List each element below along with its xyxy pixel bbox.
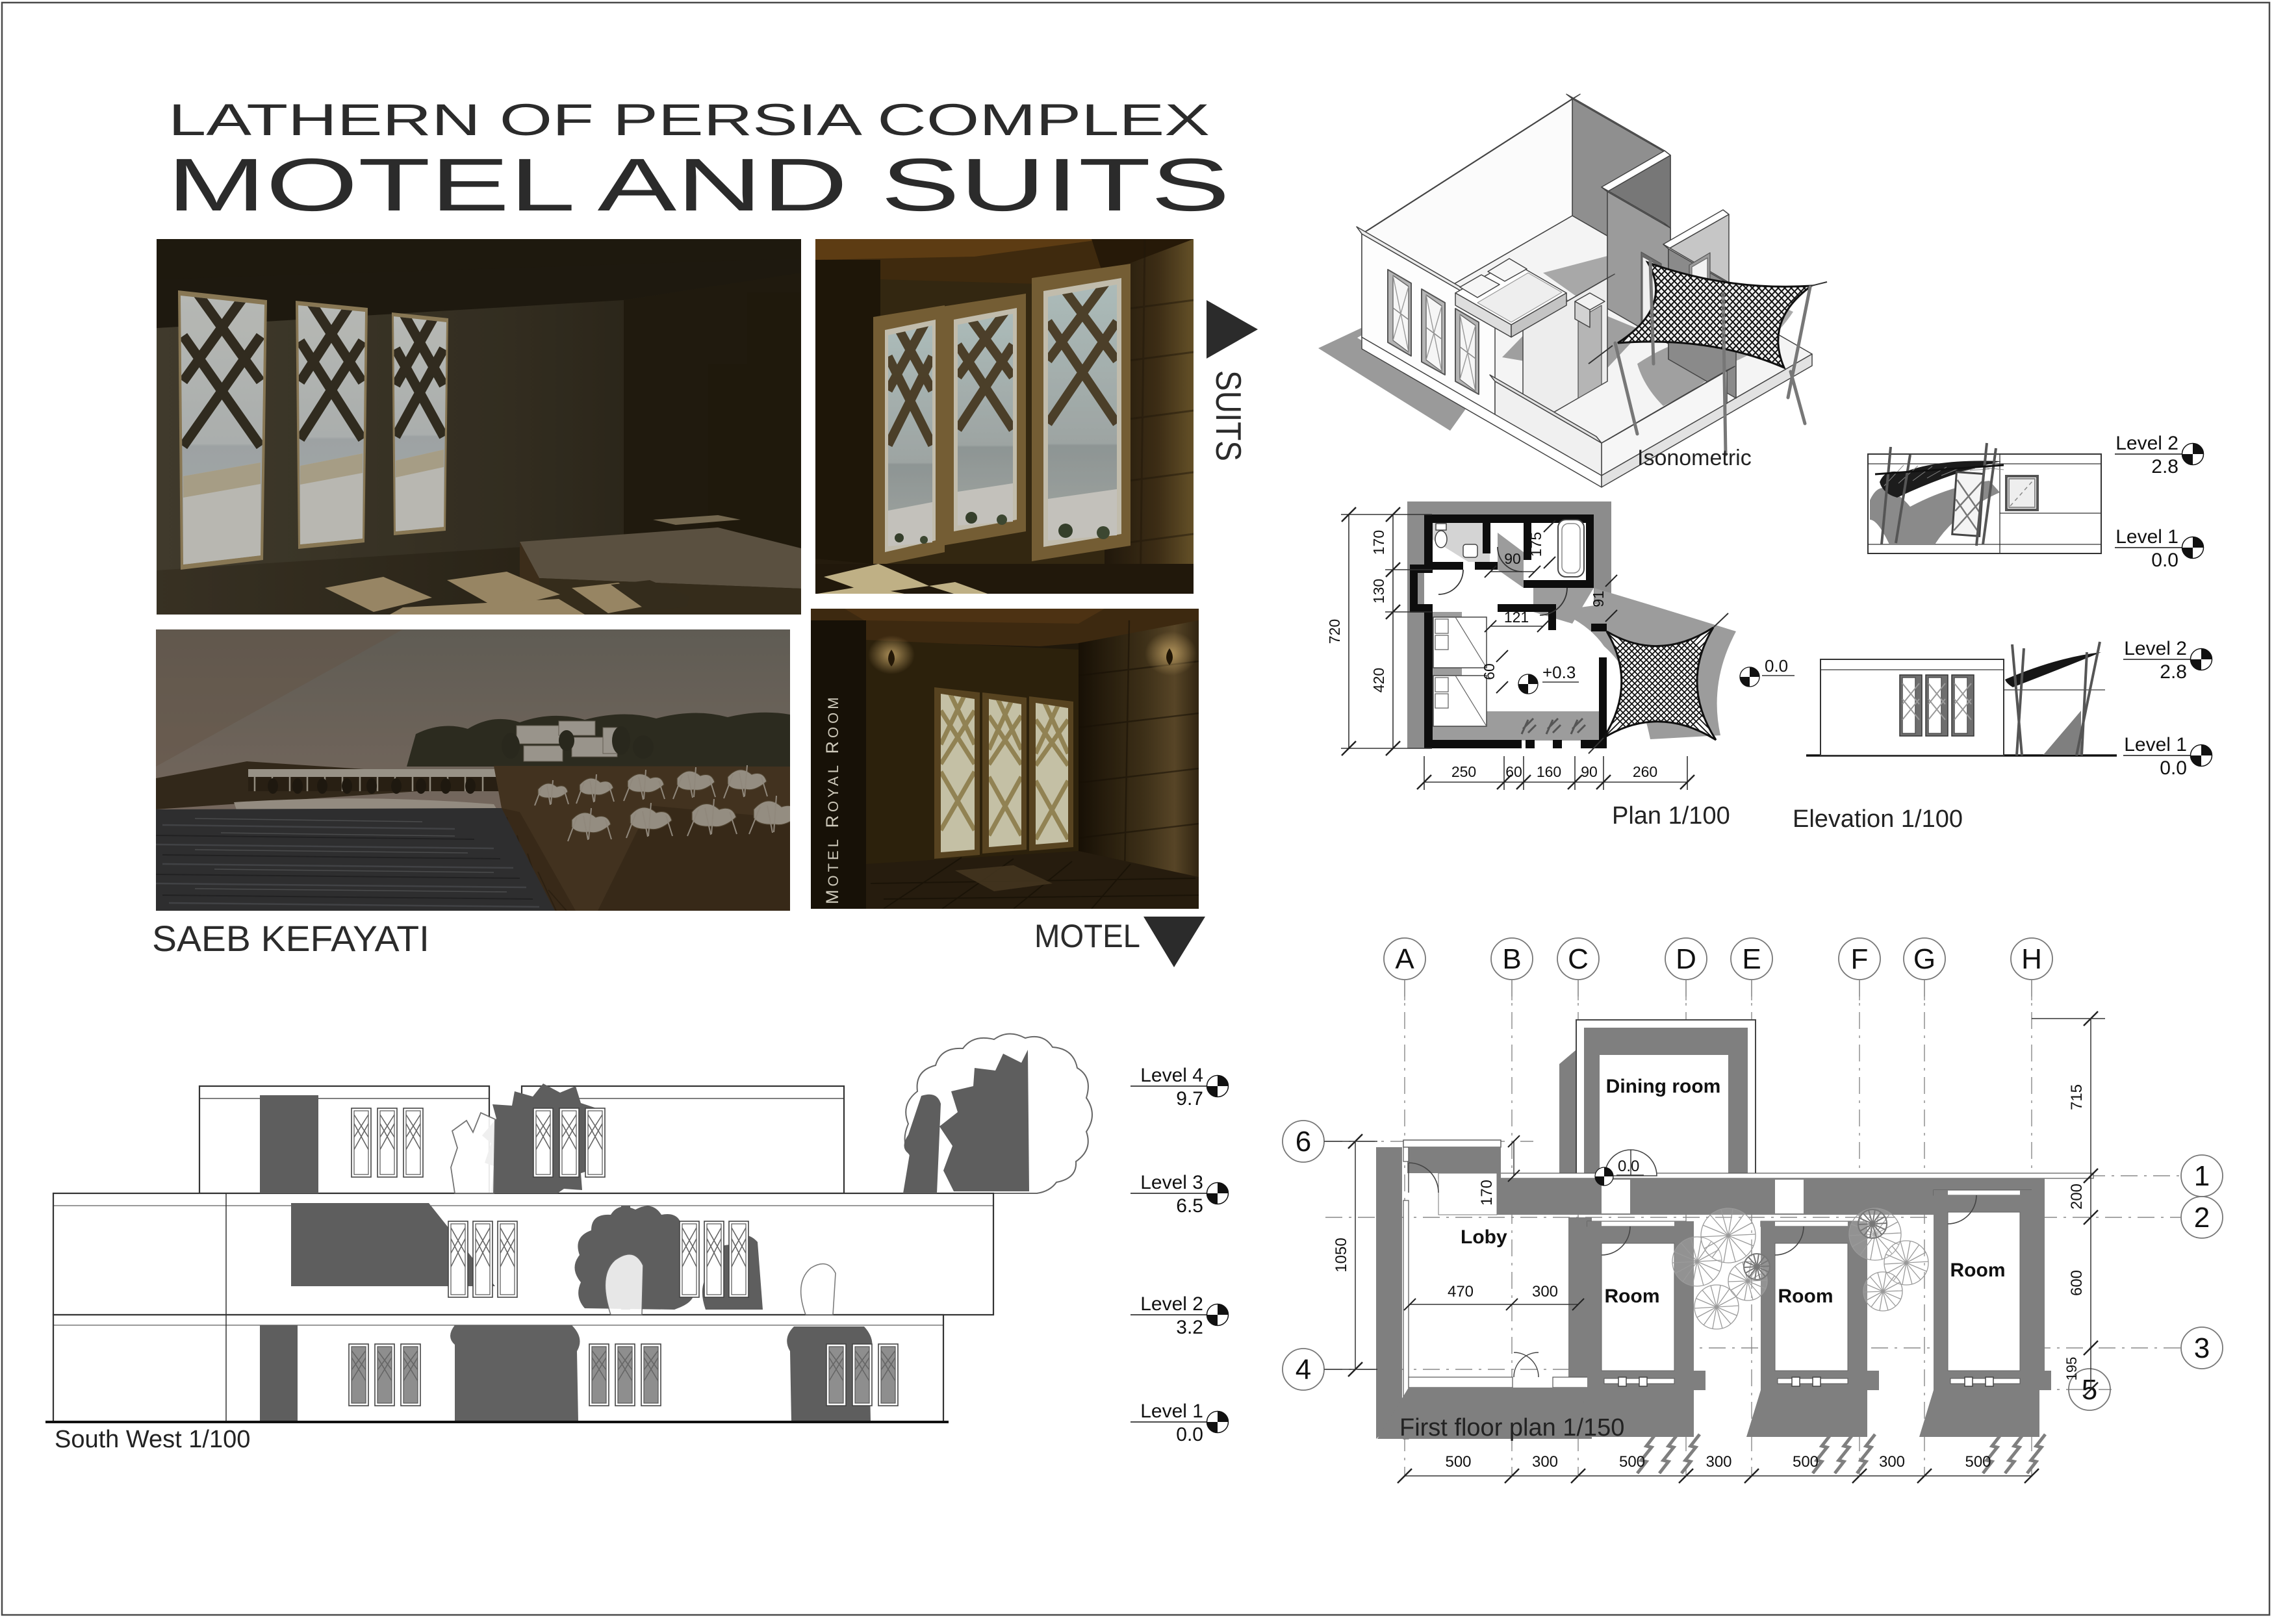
- svg-text:3.2: 3.2: [1176, 1317, 1203, 1338]
- svg-text:F: F: [1851, 943, 1869, 975]
- svg-text:300: 300: [1879, 1453, 1905, 1471]
- svg-text:160: 160: [1537, 763, 1561, 780]
- svg-text:Isonometric: Isonometric: [1637, 446, 1752, 470]
- svg-text:600: 600: [2068, 1270, 2086, 1296]
- svg-text:90: 90: [1504, 550, 1521, 567]
- svg-text:MOTEL AND SUITS: MOTEL AND SUITS: [167, 144, 1230, 227]
- svg-text:SUITS: SUITS: [1208, 370, 1249, 461]
- svg-text:0.0: 0.0: [1618, 1158, 1639, 1175]
- svg-text:2: 2: [2194, 1202, 2210, 1234]
- svg-text:Loby: Loby: [1461, 1226, 1507, 1248]
- svg-text:91: 91: [1590, 590, 1607, 607]
- svg-text:500: 500: [1793, 1453, 1819, 1471]
- svg-text:3: 3: [2194, 1332, 2210, 1364]
- svg-text:MOTEL ROYAL ROOM: MOTEL ROYAL ROOM: [823, 694, 842, 904]
- svg-text:D: D: [1676, 943, 1696, 975]
- svg-text:60: 60: [1481, 663, 1498, 680]
- svg-text:1050: 1050: [1333, 1237, 1350, 1272]
- svg-text:Room: Room: [1605, 1286, 1660, 1307]
- svg-text:South West 1/100: South West 1/100: [55, 1426, 250, 1453]
- svg-text:130: 130: [1370, 579, 1387, 603]
- svg-text:A: A: [1395, 943, 1414, 975]
- svg-text:G: G: [1913, 943, 1935, 975]
- svg-text:SAEB KEFAYATI: SAEB KEFAYATI: [152, 918, 429, 959]
- svg-text:2.8: 2.8: [2151, 456, 2178, 477]
- svg-text:Level 2: Level 2: [2124, 638, 2187, 659]
- svg-text:Level 4: Level 4: [1140, 1065, 1203, 1086]
- svg-text:0.0: 0.0: [1176, 1424, 1203, 1445]
- svg-text:60: 60: [1505, 763, 1522, 780]
- svg-text:+0.3: +0.3: [1542, 663, 1576, 682]
- svg-text:300: 300: [1705, 1453, 1731, 1471]
- svg-text:Level 2: Level 2: [2115, 433, 2178, 454]
- svg-text:300: 300: [1532, 1283, 1558, 1300]
- svg-text:4: 4: [1296, 1354, 1311, 1386]
- svg-text:90: 90: [1581, 763, 1598, 780]
- svg-text:170: 170: [1478, 1180, 1496, 1206]
- svg-text:Level 2: Level 2: [1140, 1293, 1203, 1315]
- svg-text:170: 170: [1370, 530, 1387, 555]
- svg-text:9.7: 9.7: [1176, 1088, 1203, 1110]
- svg-text:E: E: [1742, 943, 1761, 975]
- svg-text:500: 500: [1445, 1453, 1471, 1471]
- svg-text:Room: Room: [1778, 1286, 1833, 1307]
- svg-text:Plan 1/100: Plan 1/100: [1612, 802, 1730, 830]
- svg-text:Level 1: Level 1: [1140, 1401, 1203, 1422]
- svg-text:300: 300: [1532, 1453, 1558, 1471]
- svg-text:C: C: [1568, 943, 1589, 975]
- svg-text:200: 200: [2068, 1184, 2086, 1210]
- svg-text:B: B: [1502, 943, 1521, 975]
- svg-text:121: 121: [1504, 609, 1529, 626]
- svg-text:Elevation 1/100: Elevation 1/100: [1793, 806, 1963, 833]
- svg-text:175: 175: [1527, 532, 1544, 557]
- svg-text:0.0: 0.0: [1765, 656, 1788, 676]
- svg-text:470: 470: [1448, 1283, 1474, 1300]
- svg-text:Level 1: Level 1: [2124, 734, 2187, 755]
- svg-text:1: 1: [2194, 1160, 2210, 1192]
- svg-text:0.0: 0.0: [2160, 757, 2187, 779]
- svg-text:715: 715: [2068, 1084, 2086, 1110]
- svg-text:MOTEL: MOTEL: [1034, 918, 1140, 954]
- svg-text:720: 720: [1326, 619, 1343, 644]
- svg-text:260: 260: [1633, 763, 1657, 780]
- svg-text:Dining room: Dining room: [1606, 1076, 1721, 1097]
- svg-text:2.8: 2.8: [2160, 661, 2187, 683]
- svg-text:195: 195: [2063, 1357, 2080, 1381]
- svg-text:6: 6: [1296, 1126, 1311, 1158]
- svg-text:500: 500: [1965, 1453, 1991, 1471]
- svg-text:250: 250: [1451, 763, 1476, 780]
- svg-text:H: H: [2021, 943, 2042, 975]
- svg-text:Level 1: Level 1: [2115, 526, 2178, 548]
- svg-text:0.0: 0.0: [2151, 550, 2178, 571]
- svg-text:500: 500: [1619, 1453, 1645, 1471]
- svg-text:First floor plan 1/150: First floor plan 1/150: [1399, 1414, 1624, 1441]
- svg-text:6.5: 6.5: [1176, 1195, 1203, 1217]
- svg-text:LATHERN OF PERSIA COMPLEX: LATHERN OF PERSIA COMPLEX: [168, 95, 1210, 145]
- svg-text:Room: Room: [1950, 1260, 2006, 1281]
- svg-text:420: 420: [1370, 668, 1387, 692]
- svg-text:Level 3: Level 3: [1140, 1172, 1203, 1193]
